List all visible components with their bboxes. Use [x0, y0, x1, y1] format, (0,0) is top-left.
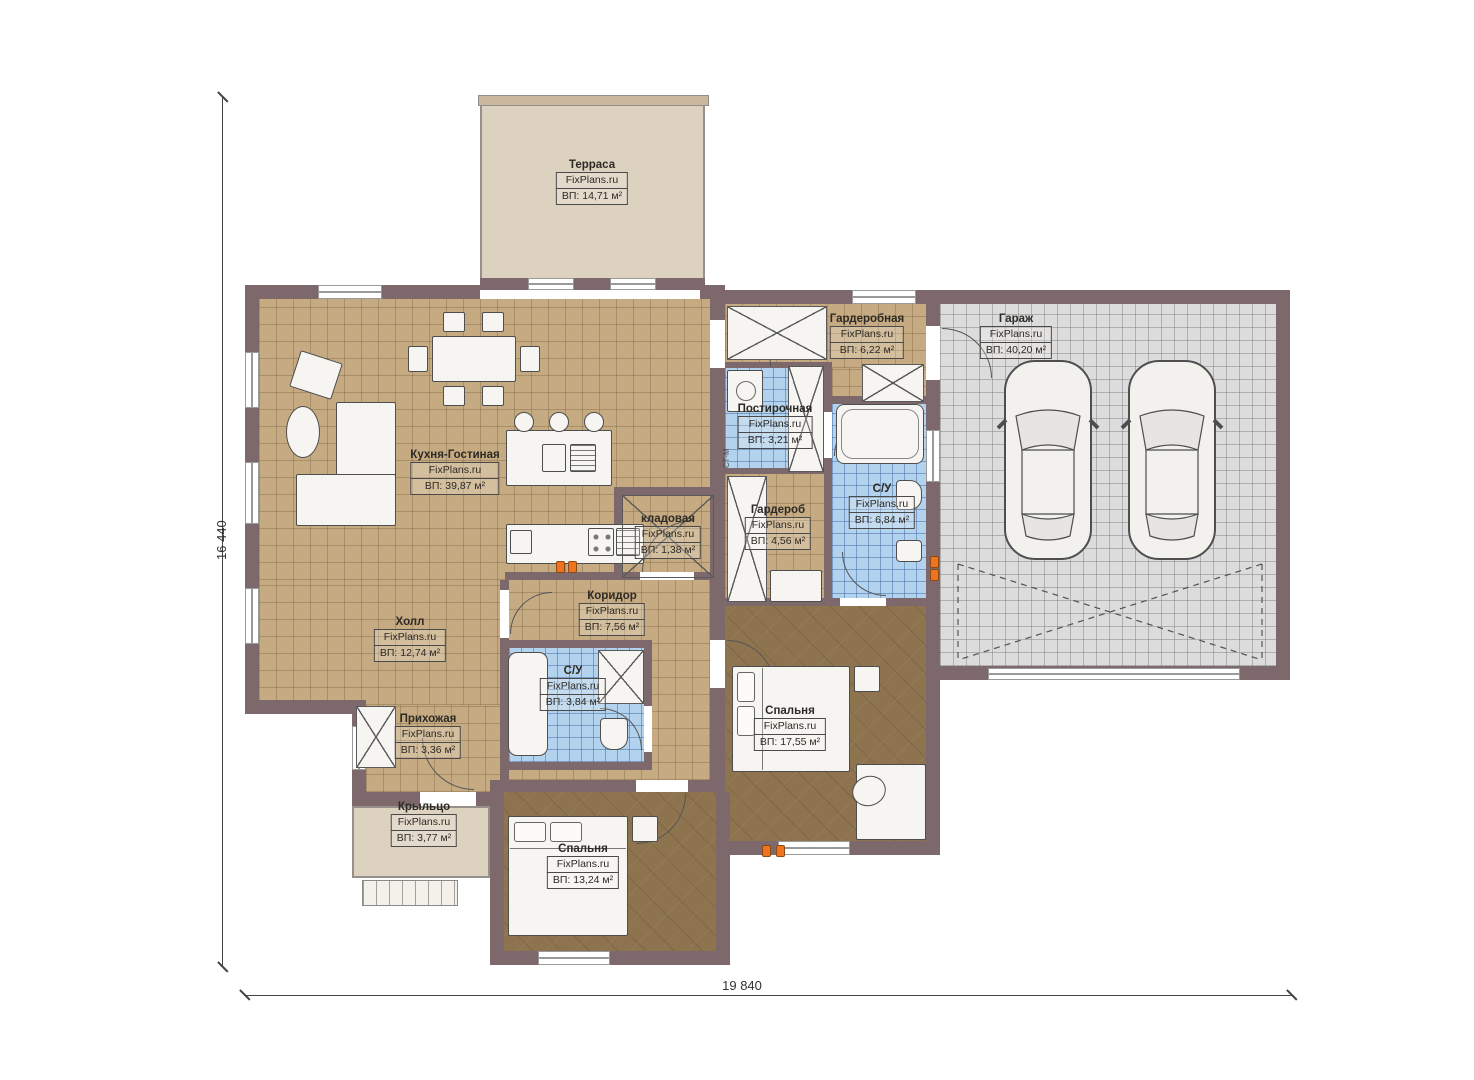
- area-box: ВП: 3,21 м²: [738, 432, 813, 449]
- chair: [520, 346, 540, 372]
- socket-icon: [930, 556, 939, 568]
- room-label-porch: Крыльцо FixPlans.ru ВП: 3,77 м²: [391, 800, 457, 847]
- area-box: ВП: 12,74 м²: [374, 645, 446, 662]
- area-box: ВП: 3,77 м²: [391, 830, 457, 847]
- porch-steps: [362, 880, 458, 906]
- brand-box: FixPlans.ru: [980, 326, 1052, 343]
- brand-box: FixPlans.ru: [635, 526, 701, 543]
- room-name: Прихожая: [395, 712, 461, 727]
- wall-segment: [505, 762, 652, 770]
- room-name: С/У: [849, 482, 915, 497]
- wall-segment: [824, 362, 832, 606]
- pillow: [514, 822, 546, 842]
- room-name: Коридор: [579, 589, 645, 604]
- door-opening: [926, 326, 940, 380]
- wall-segment: [490, 792, 504, 965]
- room-label-garage: Гараж FixPlans.ru ВП: 40,20 м²: [980, 312, 1052, 359]
- garage-door: [988, 668, 1240, 680]
- bench: [770, 570, 822, 602]
- wall-segment: [614, 487, 716, 495]
- area-box: ВП: 39,87 м²: [410, 478, 499, 495]
- socket-icon: [762, 845, 771, 857]
- bar-stool: [549, 412, 569, 432]
- dimension-tick: [218, 961, 229, 972]
- wall-segment: [505, 640, 652, 648]
- room-label-entry: Прихожая FixPlans.ru ВП: 3,36 м²: [395, 712, 461, 759]
- area-box: ВП: 6,84 м²: [849, 512, 915, 529]
- terrace-door: [528, 278, 574, 290]
- window: [926, 430, 940, 482]
- window: [318, 285, 382, 299]
- horizontal-dimension-label: 19 840: [722, 978, 762, 993]
- wall-segment: [490, 951, 730, 965]
- room-name: Гардероб: [745, 503, 811, 518]
- room-name: кладовая: [635, 512, 701, 527]
- area-box: ВП: 17,55 м²: [754, 734, 826, 751]
- room-name: Спальня: [547, 842, 619, 857]
- area-box: ВП: 3,84 м²: [540, 694, 606, 711]
- door-opening: [710, 320, 725, 368]
- terrace-roof-edge: [478, 95, 709, 106]
- brand-box: FixPlans.ru: [547, 856, 619, 873]
- area-box: ВП: 4,56 м²: [745, 533, 811, 550]
- sink: [896, 540, 922, 562]
- bathtub-inner: [841, 409, 919, 459]
- brand-box: FixPlans.ru: [738, 416, 813, 433]
- room-label-wardrobe: Гардероб FixPlans.ru ВП: 4,56 м²: [745, 503, 811, 550]
- bar-stool: [584, 412, 604, 432]
- room-label-storage: кладовая FixPlans.ru ВП: 1,38 м²: [635, 512, 701, 559]
- room-label-laundry: Постирочная FixPlans.ru ВП: 3,21 м²: [738, 402, 813, 449]
- washer-tag-label: СТ-М: [722, 448, 731, 468]
- window: [852, 290, 916, 304]
- pillow: [737, 672, 755, 702]
- counter-sink: [510, 530, 532, 554]
- cooktop: [588, 528, 614, 556]
- room-label-corridor: Коридор FixPlans.ru ВП: 7,56 м²: [579, 589, 645, 636]
- chair: [482, 386, 504, 406]
- washer-drum-icon: [736, 381, 756, 401]
- wardrobe-icon: [727, 306, 827, 360]
- area-box: ВП: 3,36 м²: [395, 742, 461, 759]
- brand-box: FixPlans.ru: [754, 718, 826, 735]
- room-label-bathroom-main: С/У FixPlans.ru ВП: 6,84 м²: [849, 482, 915, 529]
- socket-icon: [930, 569, 939, 581]
- nightstand: [854, 666, 880, 692]
- window: [245, 462, 259, 524]
- window: [538, 951, 610, 965]
- brand-box: FixPlans.ru: [849, 496, 915, 513]
- brand-box: FixPlans.ru: [395, 726, 461, 743]
- terrace-door: [610, 278, 656, 290]
- door-opening: [824, 412, 832, 458]
- room-name: Гардеробная: [830, 312, 904, 327]
- car-icon: [1002, 358, 1094, 562]
- area-box: ВП: 1,38 м²: [635, 542, 701, 559]
- nightstand: [632, 816, 658, 842]
- window: [245, 588, 259, 644]
- socket-icon: [568, 561, 577, 573]
- room-label-bedroom-bottom: Спальня FixPlans.ru ВП: 13,24 м²: [547, 842, 619, 889]
- socket-icon: [556, 561, 565, 573]
- brand-box: FixPlans.ru: [579, 603, 645, 620]
- window: [778, 841, 850, 855]
- room-label-kitchen-living: Кухня-Гостиная FixPlans.ru ВП: 39,87 м²: [410, 448, 499, 495]
- room-label-bedroom-right: Спальня FixPlans.ru ВП: 17,55 м²: [754, 704, 826, 751]
- sofa: [296, 474, 396, 526]
- bar-stool: [514, 412, 534, 432]
- door-opening: [840, 598, 886, 606]
- garage-maneuver-lines: [952, 558, 1268, 666]
- dining-table: [432, 336, 516, 382]
- pillow: [550, 822, 582, 842]
- brand-box: FixPlans.ru: [540, 678, 606, 695]
- wall-segment: [716, 792, 730, 965]
- door-opening: [500, 590, 509, 638]
- brand-box: FixPlans.ru: [745, 517, 811, 534]
- vertical-dimension-label: 16 440: [214, 520, 229, 560]
- room-name: Гараж: [980, 312, 1052, 327]
- wall-segment: [480, 278, 705, 290]
- door-opening: [636, 780, 688, 792]
- window: [245, 352, 259, 408]
- room-label-terrace: Терраса FixPlans.ru ВП: 14,71 м²: [556, 158, 628, 205]
- chair: [443, 312, 465, 332]
- area-box: ВП: 6,22 м²: [830, 342, 904, 359]
- area-box: ВП: 14,71 м²: [556, 188, 628, 205]
- brand-box: FixPlans.ru: [374, 629, 446, 646]
- island-stove: [570, 444, 596, 472]
- area-box: ВП: 13,24 м²: [547, 872, 619, 889]
- room-name: С/У: [540, 664, 606, 679]
- toilet: [600, 718, 628, 750]
- area-box: ВП: 40,20 м²: [980, 342, 1052, 359]
- room-name: Терраса: [556, 158, 628, 173]
- area-box: ВП: 7,56 м²: [579, 619, 645, 636]
- wall-segment: [718, 290, 1290, 304]
- chair: [408, 346, 428, 372]
- room-name: Холл: [374, 615, 446, 630]
- wall-segment: [1276, 290, 1290, 680]
- brand-box: FixPlans.ru: [391, 814, 457, 831]
- room-label-bathroom-small: С/У FixPlans.ru ВП: 3,84 м²: [540, 664, 606, 711]
- room-label-hall: Холл FixPlans.ru ВП: 12,74 м²: [374, 615, 446, 662]
- dimension-tick: [218, 91, 229, 102]
- brand-box: FixPlans.ru: [410, 462, 499, 479]
- door-opening: [644, 706, 652, 752]
- room-name: Постирочная: [738, 402, 813, 417]
- brand-box: FixPlans.ru: [556, 172, 628, 189]
- brand-box: FixPlans.ru: [830, 326, 904, 343]
- island-sink: [542, 444, 566, 472]
- chair: [482, 312, 504, 332]
- car-icon: [1126, 358, 1218, 562]
- chair: [443, 386, 465, 406]
- socket-icon: [776, 845, 785, 857]
- door-opening: [710, 640, 725, 688]
- room-name: Спальня: [754, 704, 826, 719]
- room-label-dressing-room: Гардеробная FixPlans.ru ВП: 6,22 м²: [830, 312, 904, 359]
- closet-icon: [356, 706, 396, 768]
- coffee-table: [286, 406, 320, 458]
- pillow: [737, 706, 755, 736]
- room-name: Крыльцо: [391, 800, 457, 815]
- room-name: Кухня-Гостиная: [410, 448, 499, 463]
- floor-plan: СТ-М Терр: [0, 0, 1474, 1080]
- wall-segment: [245, 700, 366, 714]
- bathtub: [836, 404, 924, 464]
- wardrobe-icon: [862, 364, 924, 402]
- horizontal-dimension-line: [245, 995, 1292, 996]
